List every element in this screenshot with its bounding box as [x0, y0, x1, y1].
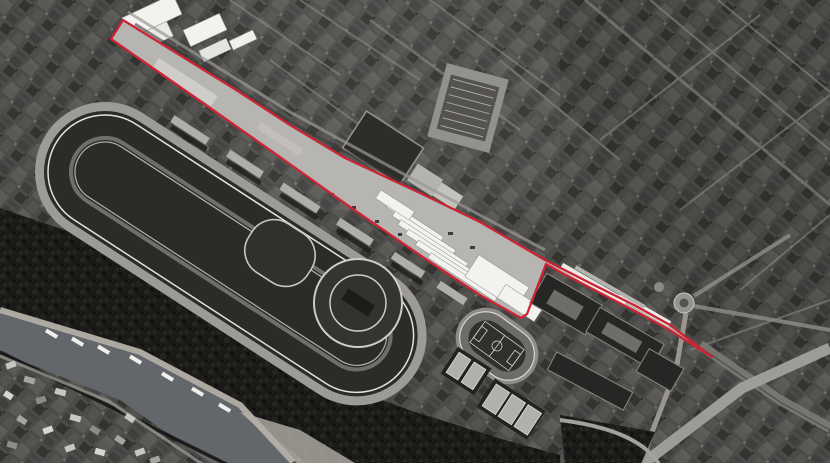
- aerial-photo: [0, 0, 830, 466]
- aerial-photo-canvas: [0, 0, 830, 466]
- roundabout-center: [680, 299, 689, 308]
- circular-track: [314, 259, 402, 347]
- small-circle: [654, 282, 664, 292]
